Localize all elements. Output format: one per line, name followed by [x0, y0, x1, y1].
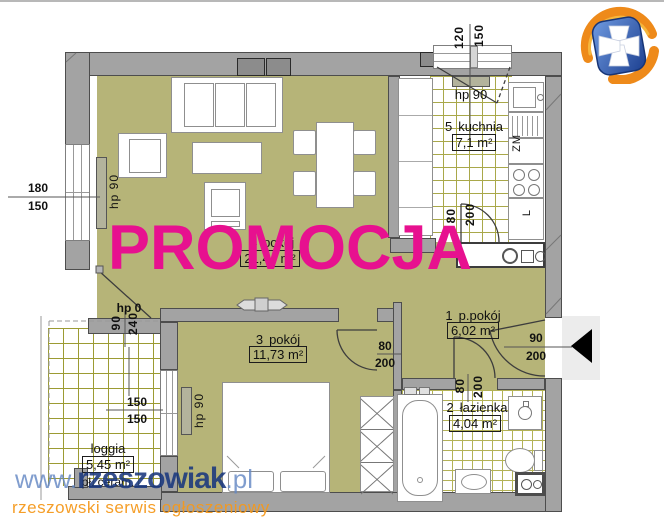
room-number: 2 [447, 400, 454, 415]
dim-top-window-height: 150 [472, 24, 486, 47]
bath-door-arc [454, 337, 495, 378]
dim-loggia-window-width: 150 [119, 395, 155, 409]
rzeszowiak-logo-icon [578, 6, 660, 84]
area-box: 7,1 m² [452, 134, 497, 151]
radiator-label-kitchen: hp 90 [449, 88, 493, 102]
dim-room3-door-width: 80 [370, 339, 400, 353]
site-prefix: www. [15, 464, 77, 495]
room-name: łazienka [460, 400, 508, 415]
kitchen-window-casement-dashed [497, 67, 510, 103]
dim-loggia-window-height: 150 [119, 412, 155, 426]
corner-hatch [66, 53, 76, 62]
room-label-kitchen: 5 kuchnia [436, 119, 512, 134]
dim-entrance-door-height: 200 [518, 349, 554, 363]
room-name: pokój [269, 332, 300, 347]
room-number: 3 [256, 332, 263, 347]
room-name: p.pokój [459, 308, 501, 323]
area-box: 4,04 m² [449, 415, 501, 432]
dim-balcony-door-width: 90 [109, 315, 123, 330]
bed-fold [313, 456, 325, 468]
vent-hatch [546, 235, 561, 250]
site-tagline: rzeszowski serwis ogłoszeniowy [12, 498, 270, 518]
balcony-door-hinge [96, 266, 103, 273]
radiator-label-living: hp 90 [107, 174, 121, 209]
floor-plan-canvas: 120 150 180 150 150 150 hp 0 90 240 80 2… [0, 0, 664, 532]
room-number: 5 [445, 119, 452, 134]
room-name: kuchnia [458, 119, 503, 134]
room-area-room3: 11,73 m² [234, 346, 322, 363]
area-box: 11,73 m² [249, 346, 307, 363]
area-box: 6,02 m² [447, 322, 499, 339]
dim-top-window-width: 120 [452, 26, 466, 49]
fridge-label: L [520, 209, 534, 216]
room-label-hall: 1 p.pokój [434, 308, 512, 323]
entrance-arrow-icon [571, 329, 592, 363]
vent-hatch [546, 94, 561, 110]
room-number: 1 [445, 308, 452, 323]
dim-left-window-width: 180 [10, 181, 48, 195]
room-label-room3: 3 pokój [240, 332, 316, 347]
room-area-hall: 6,02 m² [430, 322, 516, 339]
site-watermark: www. rzeszowiak .pl [15, 462, 253, 496]
site-name: rzeszowiak [77, 462, 225, 496]
room-area-bath: 4,04 m² [430, 415, 520, 432]
room-label-loggia: loggia [80, 441, 136, 456]
dim-entrance-door-width: 90 [521, 331, 551, 345]
dim-bath-door-height: 200 [471, 375, 485, 398]
tv-console-center [255, 298, 268, 311]
room-label-bath: 2 łazienka [436, 400, 518, 415]
room-area-kitchen: 7,1 m² [420, 134, 528, 151]
dim-bath-door-width: 80 [453, 378, 467, 393]
promo-watermark: PROMOCJA [108, 217, 472, 280]
dim-left-window-height: 150 [10, 199, 48, 213]
dim-balcony-door-height: 240 [126, 312, 140, 335]
dim-room3-door-height: 200 [368, 356, 402, 370]
vent-hatch [546, 298, 561, 314]
site-tld: .pl [226, 464, 253, 495]
radiator-label-room3: hp 90 [192, 393, 206, 428]
